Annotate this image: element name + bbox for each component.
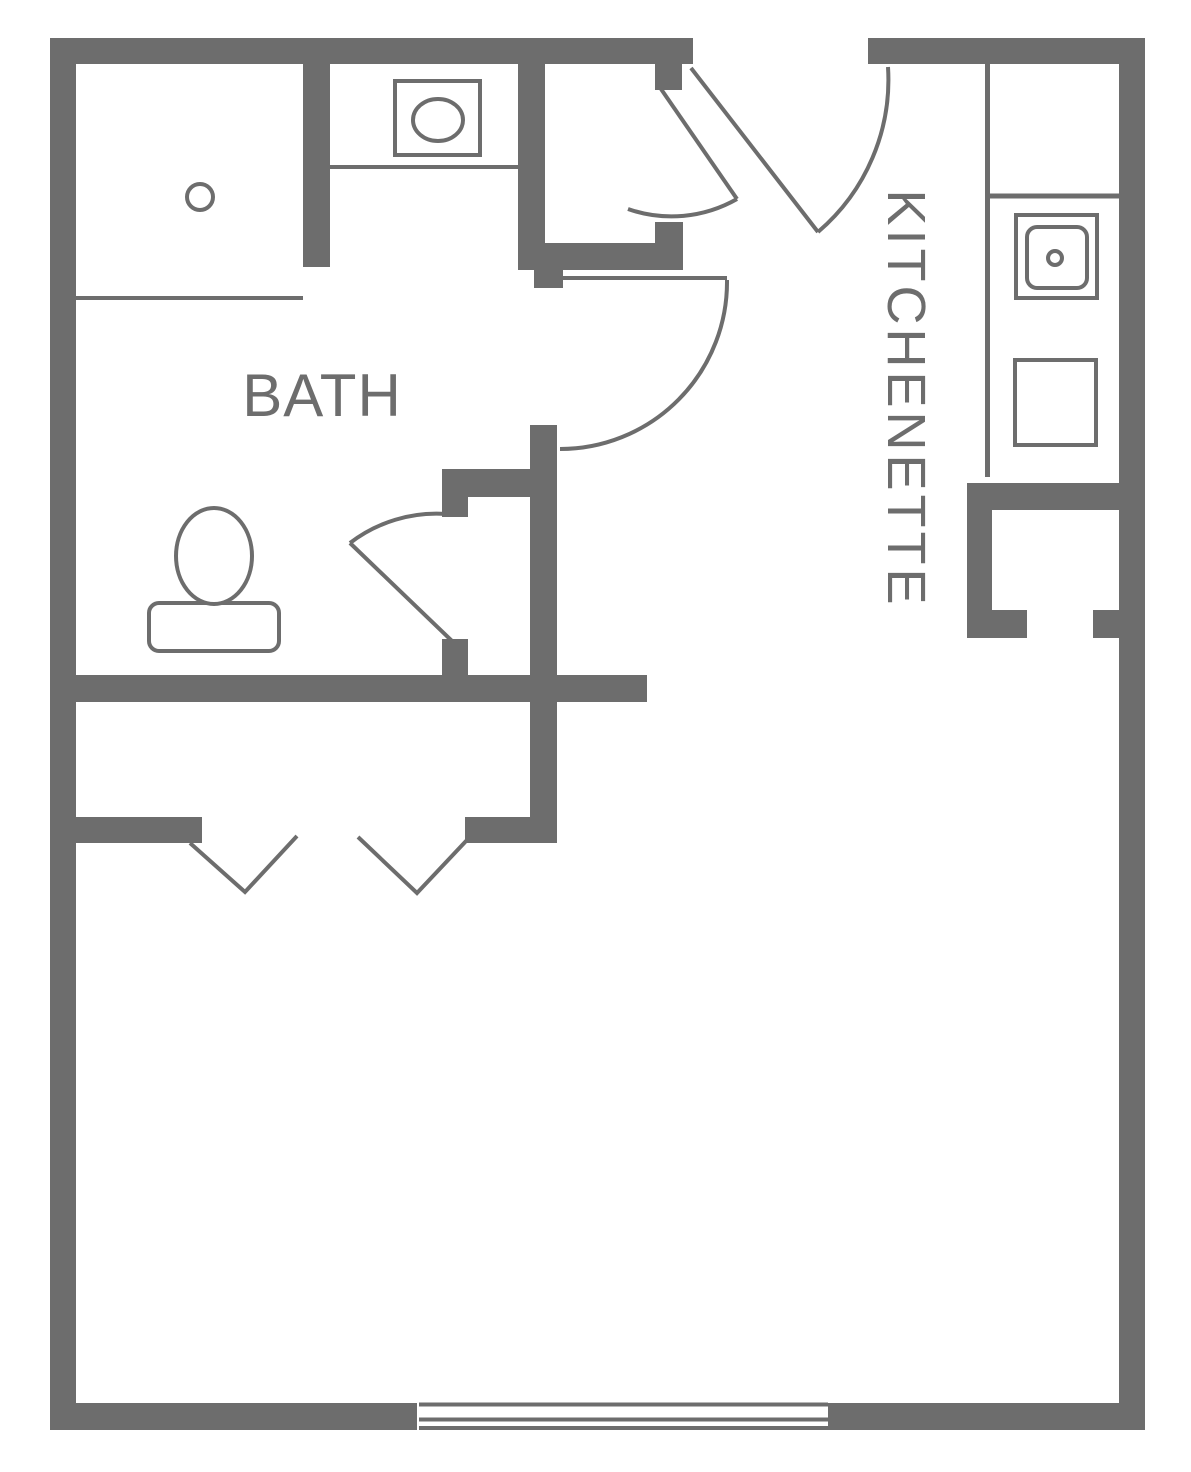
kitchenette-counter: [988, 64, 1120, 477]
bath-door: [560, 278, 727, 449]
wall-closet-left: [518, 64, 545, 243]
toilet-icon: [149, 508, 279, 651]
wall-kitchen-closet-left: [967, 483, 992, 638]
wall-closet-jamb-top: [655, 64, 682, 90]
kitchenette-room-label: KITCHENETTE: [876, 189, 936, 608]
wall-shower-divider: [303, 64, 330, 267]
floor-plan: BATH KITCHENETTE: [0, 0, 1191, 1472]
bifold-closet-doors: [190, 836, 467, 893]
wall-lower-closet-right: [465, 817, 557, 843]
wall-top-left: [50, 38, 693, 64]
bathroom-sink-icon: [330, 81, 518, 167]
wall-kitchen-closet-right-stub: [1093, 610, 1119, 638]
wall-bottom-left: [50, 1403, 417, 1430]
wall-left-outer: [50, 38, 76, 1430]
wall-hall-horizontal: [442, 469, 533, 497]
floor-plan-drawing: BATH KITCHENETTE: [0, 0, 1191, 1472]
wall-top-right: [868, 38, 1145, 64]
fixtures: [76, 64, 1119, 651]
wall-mid-vertical: [530, 425, 557, 843]
walls: [50, 38, 1145, 1430]
shower-icon: [76, 184, 303, 298]
wall-right-outer: [1119, 38, 1145, 1430]
bathroom-inner-door: [350, 514, 452, 641]
shower-drain-icon: [187, 184, 213, 210]
wall-kitchen-closet-left-foot: [992, 610, 1027, 638]
wall-bath-door-stub: [534, 270, 563, 288]
kitchen-sink-icon: [1016, 215, 1097, 298]
bath-room-label: BATH: [242, 362, 402, 429]
stove-icon: [1015, 360, 1096, 445]
wall-lower-closet-left: [76, 817, 202, 843]
wall-inner-door-jamb: [442, 639, 468, 678]
main-room-window: [417, 1402, 828, 1431]
wall-closet-jamb-bottom: [655, 222, 683, 243]
wall-closet-bottom: [518, 243, 683, 270]
wall-bottom-right: [828, 1403, 1145, 1430]
wall-bath-bottom: [76, 675, 647, 702]
